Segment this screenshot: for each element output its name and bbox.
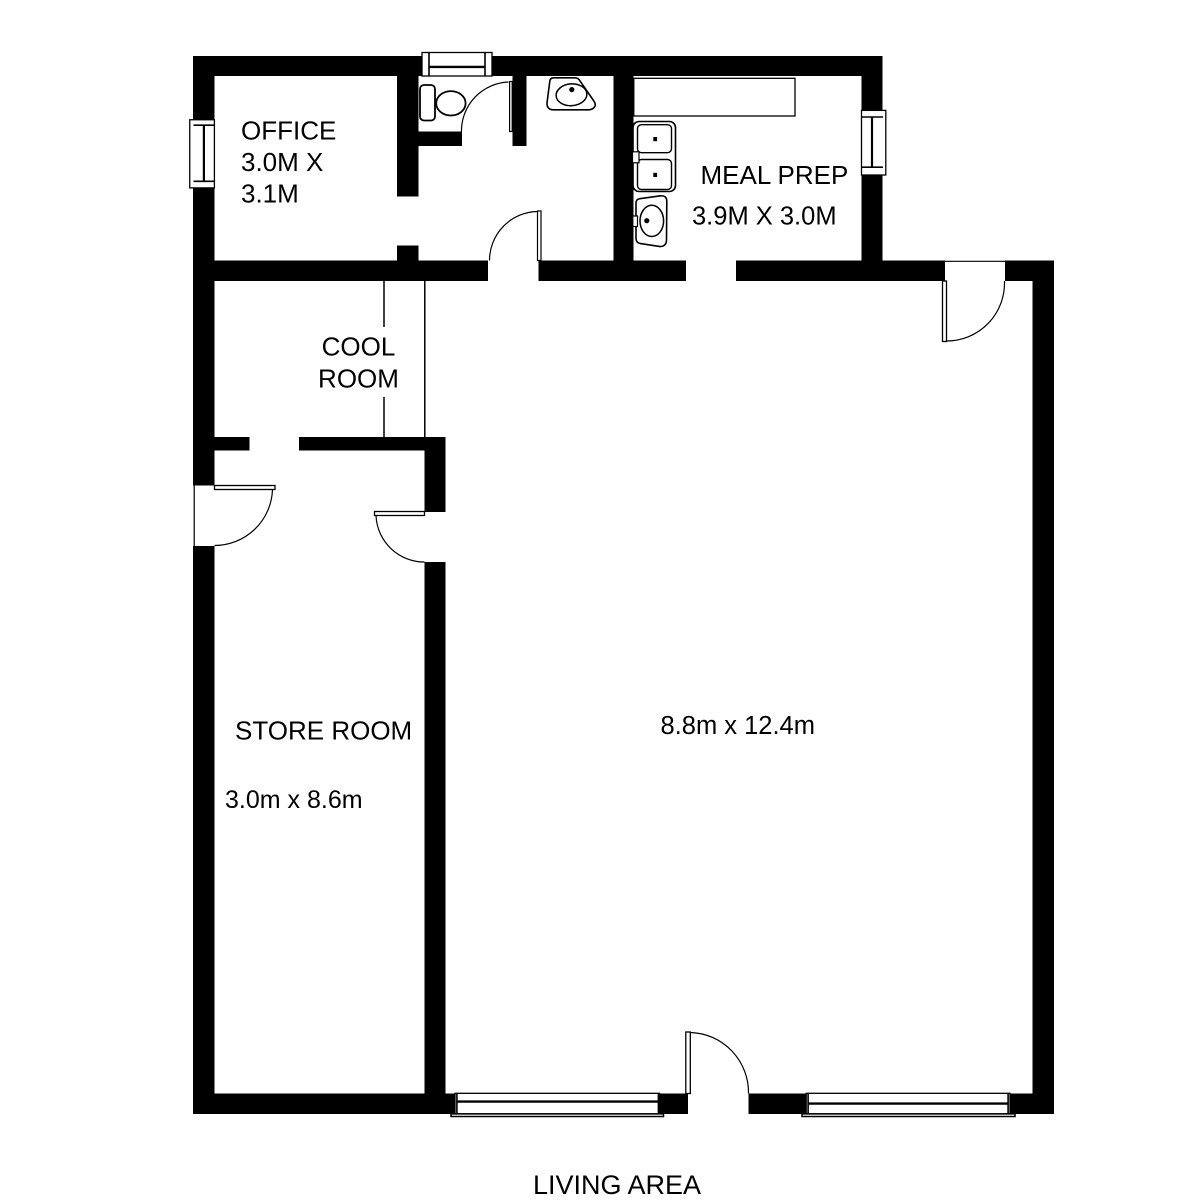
svg-text:ROOM: ROOM <box>318 364 399 394</box>
svg-text:COOL: COOL <box>322 332 396 362</box>
svg-text:MEAL PREP: MEAL PREP <box>701 160 849 190</box>
svg-text:LIVING AREA: LIVING AREA <box>533 1170 701 1200</box>
svg-text:OFFICE: OFFICE <box>241 116 336 146</box>
svg-text:3.1M: 3.1M <box>241 179 299 209</box>
svg-text:3.0m x 8.6m: 3.0m x 8.6m <box>225 786 363 814</box>
svg-text:3.9M X 3.0M: 3.9M X 3.0M <box>692 202 837 230</box>
svg-text:STORE ROOM: STORE ROOM <box>235 715 412 745</box>
svg-text:3.0M X: 3.0M X <box>241 147 323 177</box>
svg-text:8.8m x 12.4m: 8.8m x 12.4m <box>661 712 815 740</box>
